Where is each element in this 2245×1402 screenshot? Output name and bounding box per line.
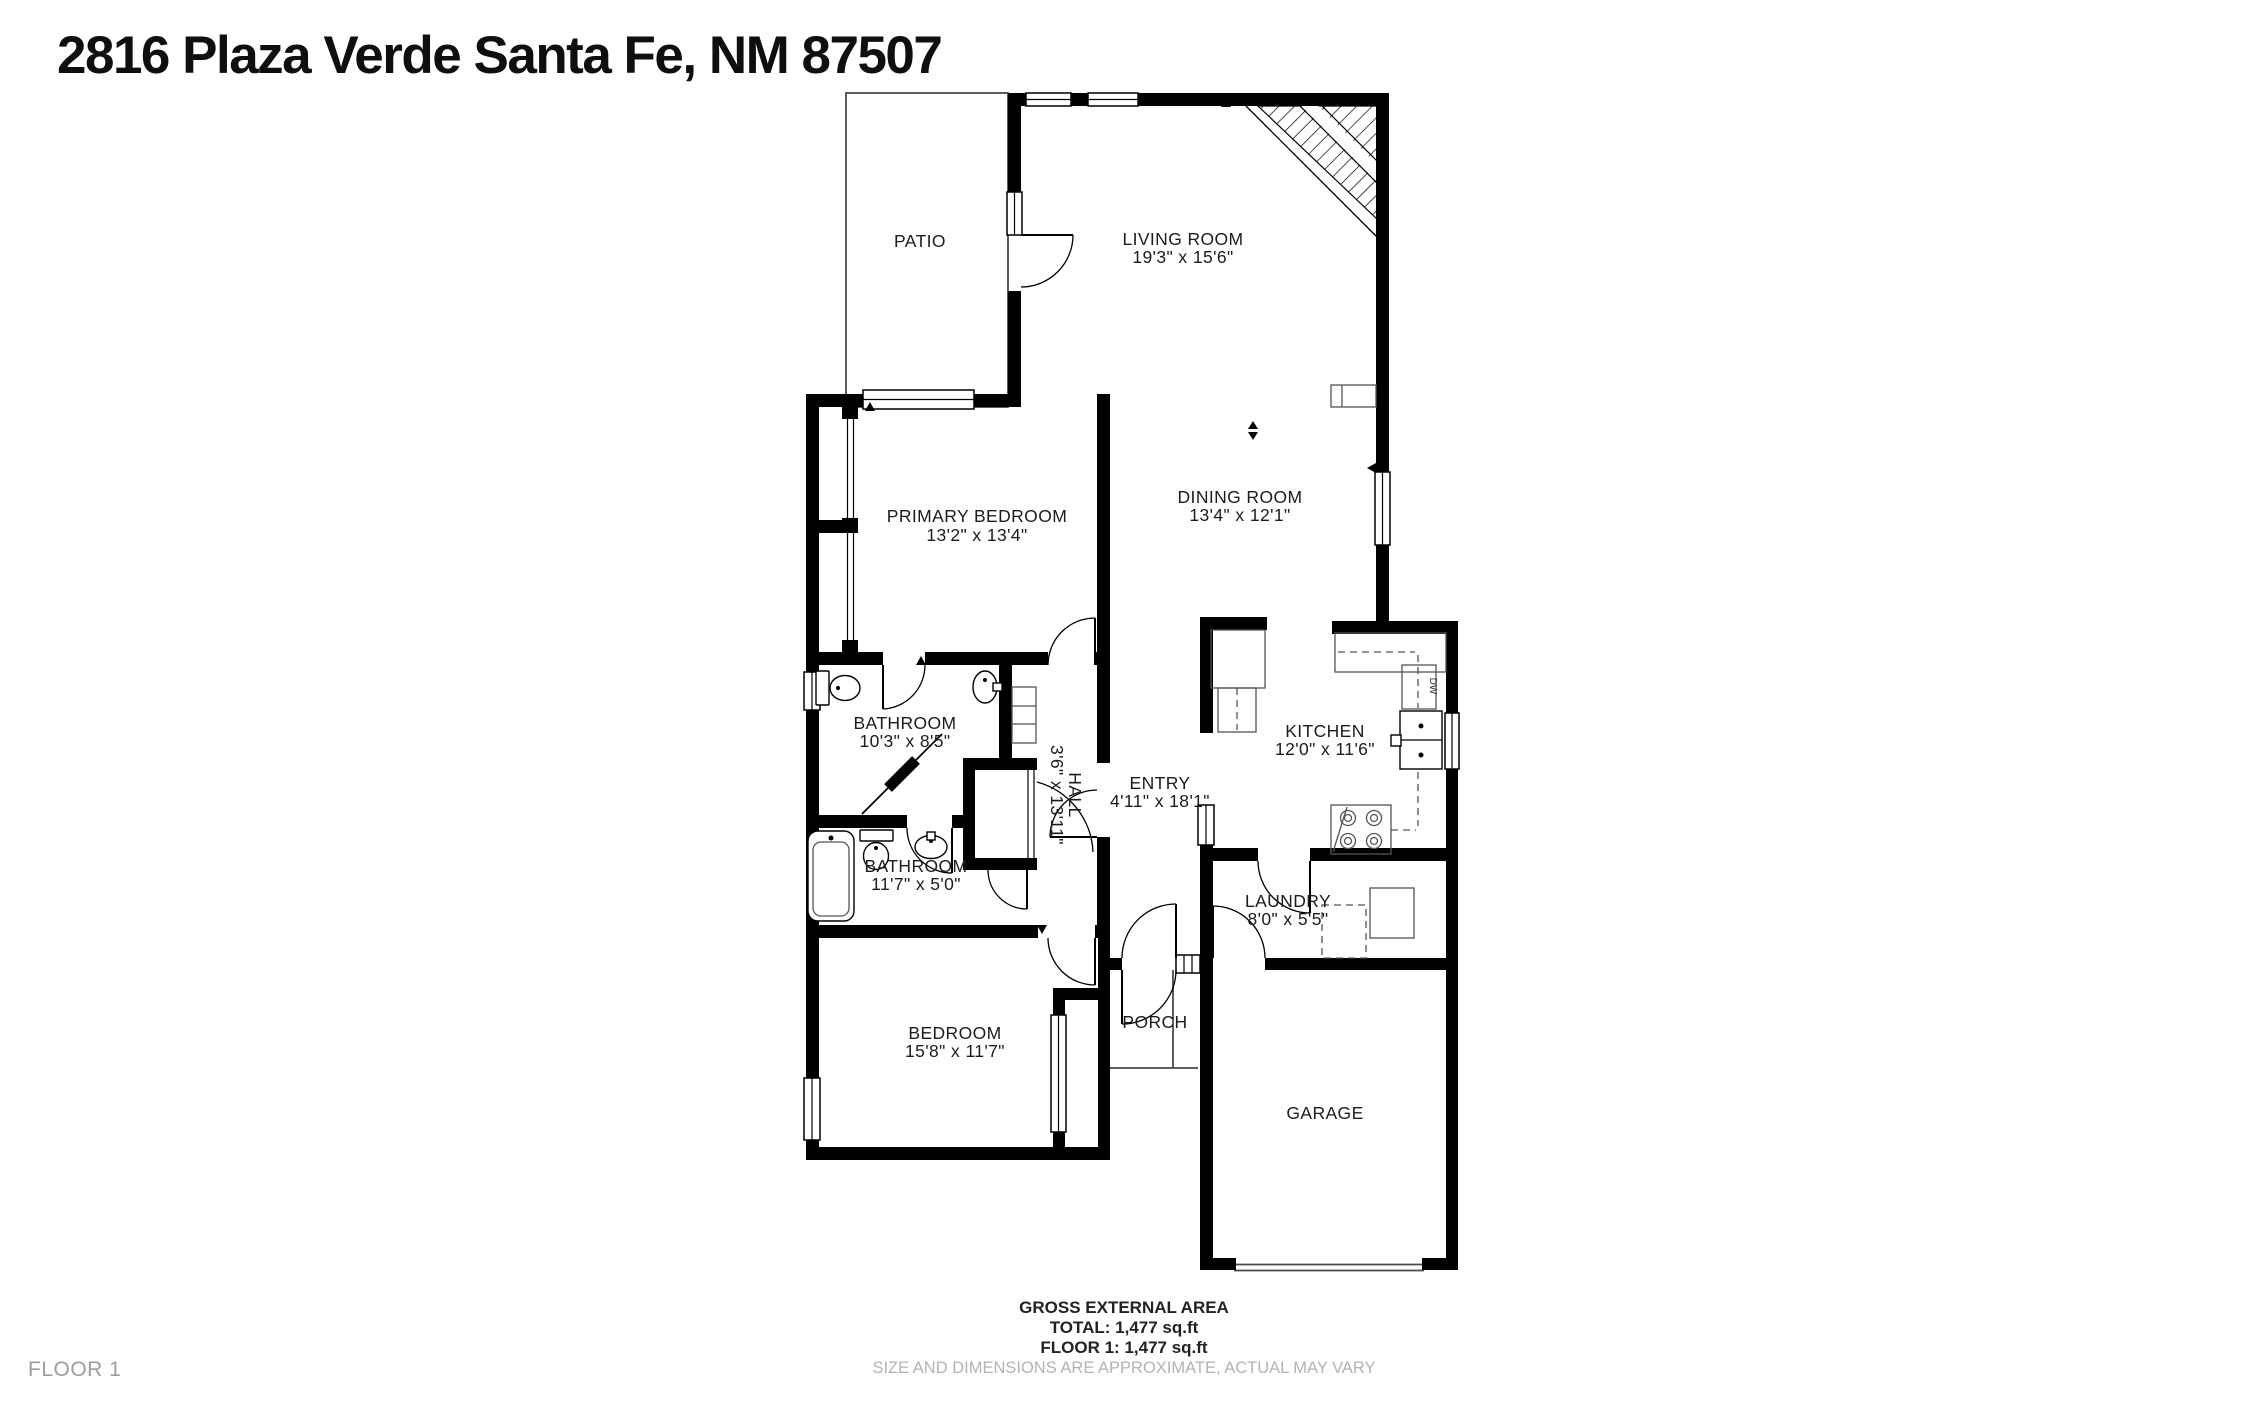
room-label-laundry: LAUNDRY: [1245, 891, 1331, 911]
window-icon: [1445, 713, 1459, 769]
room-label-living: LIVING ROOM: [1122, 229, 1243, 249]
room-dims-kitchen: 12'0" x 11'6": [1275, 739, 1375, 759]
walls: [806, 93, 1458, 1270]
fireplace-icon: [1246, 90, 1390, 237]
fridge-icon: [1211, 630, 1265, 732]
labels: PATIO LIVING ROOM 19'3" x 15'6" DINING R…: [853, 229, 1438, 1123]
sink-icon: [915, 832, 947, 859]
stove-icon: [1341, 811, 1382, 849]
room-dims-living: 19'3" x 15'6": [1132, 247, 1233, 267]
toilet-icon: [816, 671, 860, 705]
room-label-bedroom: BEDROOM: [908, 1023, 1001, 1043]
room-dims-primary-bedroom: 13'2" x 13'4": [926, 525, 1027, 545]
footer: GROSS EXTERNAL AREA TOTAL: 1,477 sq.ft F…: [872, 1298, 1375, 1377]
room-label-hall-group: HALL 3'6" x 13'11": [1047, 745, 1085, 845]
floorplan-svg: PATIO LIVING ROOM 19'3" x 15'6" DINING R…: [0, 0, 2245, 1402]
garage-door: [1234, 1265, 1424, 1271]
window-icon: [1007, 192, 1022, 235]
pocket-door-icon: [1198, 805, 1214, 845]
room-label-hall: HALL: [1065, 772, 1085, 817]
room-dims-bedroom: 15'8" x 11'7": [905, 1041, 1005, 1061]
patio-door-icon: [1021, 235, 1073, 287]
room-label-kitchen: KITCHEN: [1285, 721, 1365, 741]
bedroom-door-icon: [1048, 938, 1095, 985]
shelves-icon: [1012, 687, 1036, 743]
room-dims-hall: 3'6" x 13'11": [1047, 745, 1067, 845]
floorplan-page: PATIO LIVING ROOM 19'3" x 15'6" DINING R…: [0, 0, 2245, 1402]
washer-dryer-icon: [1322, 888, 1414, 958]
front-door-sidelite-icon: [1176, 955, 1200, 973]
footer-total: TOTAL: 1,477 sq.ft: [1050, 1318, 1199, 1337]
room-label-bathroom1: BATHROOM: [853, 713, 956, 733]
sideboard-icon: [1331, 385, 1376, 407]
kitchen-sink-icon: [1391, 711, 1442, 769]
vestibule-door-icon: [988, 870, 1027, 909]
window-icon: [804, 1078, 820, 1140]
room-dims-dining: 13'4" x 12'1": [1189, 505, 1290, 525]
bathtub-icon: [808, 831, 854, 921]
window-icon: [1026, 93, 1071, 106]
primary-bedroom-door-icon: [1048, 618, 1095, 665]
window-icon: [863, 390, 974, 409]
sink-icon: [973, 671, 1002, 703]
room-label-primary-bedroom: PRIMARY BEDROOM: [887, 506, 1067, 526]
window-icon: [1051, 1015, 1066, 1132]
footer-area-heading: GROSS EXTERNAL AREA: [1019, 1298, 1229, 1317]
window-icon: [1375, 472, 1390, 545]
room-label-entry: ENTRY: [1130, 773, 1191, 793]
hall-closet-sliding-door-icon: [1028, 770, 1034, 858]
front-door-icon: [1122, 904, 1176, 1024]
bathroom1-door-icon: [883, 665, 925, 709]
room-dims-bathroom2: 11'7" x 5'0": [871, 874, 961, 894]
room-dims-bathroom1: 10'3" x 8'5": [859, 731, 950, 751]
room-label-dining: DINING ROOM: [1178, 487, 1303, 507]
room-label-porch: PORCH: [1122, 1012, 1187, 1032]
room-dims-laundry: 8'0" x 5'5": [1248, 909, 1329, 929]
room-dims-entry: 4'11" x 18'1": [1110, 791, 1210, 811]
window-icon: [1088, 93, 1138, 106]
room-label-garage: GARAGE: [1286, 1103, 1363, 1123]
room-label-patio: PATIO: [894, 231, 946, 251]
room-label-bathroom2: BATHROOM: [864, 856, 967, 876]
footer-floor1: FLOOR 1: 1,477 sq.ft: [1040, 1338, 1208, 1357]
page-title: 2816 Plaza Verde Santa Fe, NM 87507: [57, 26, 941, 85]
dishwasher-label: DW: [1427, 678, 1438, 695]
floor-badge: FLOOR 1: [28, 1358, 121, 1381]
footer-disclaimer: SIZE AND DIMENSIONS ARE APPROXIMATE, ACT…: [872, 1359, 1375, 1377]
